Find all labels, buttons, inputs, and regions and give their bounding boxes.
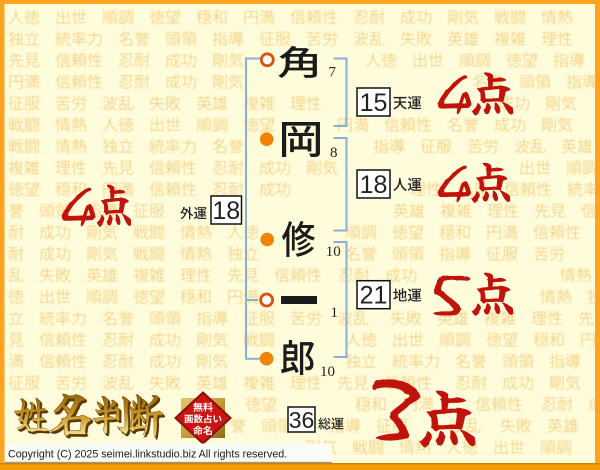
- svg-text:1: 1: [331, 305, 339, 321]
- svg-text:36: 36: [289, 407, 315, 433]
- svg-text:Copyright (C) 2025 seimei.link: Copyright (C) 2025 seimei.linkstudio.biz…: [8, 449, 287, 461]
- svg-text:7: 7: [329, 65, 337, 81]
- svg-text:15: 15: [360, 89, 388, 117]
- svg-text:18: 18: [212, 197, 240, 225]
- svg-text:10: 10: [326, 244, 341, 260]
- svg-text:10: 10: [320, 364, 335, 380]
- svg-text:18: 18: [360, 171, 388, 199]
- svg-text:8: 8: [330, 145, 338, 161]
- svg-text:21: 21: [360, 282, 388, 310]
